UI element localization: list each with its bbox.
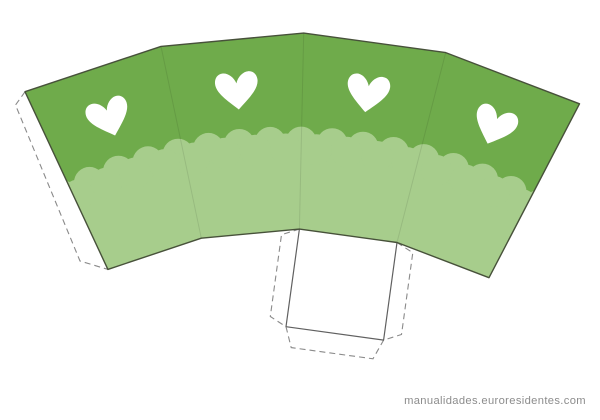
scallop-bump-back <box>179 143 210 174</box>
scallop-bump-back <box>331 137 362 168</box>
box-base-square <box>286 229 397 340</box>
scallop-bump-back <box>149 149 180 180</box>
scallop-bump-back <box>209 138 240 169</box>
scallop-bump-back <box>450 165 481 196</box>
craft-template-svg: manualidades.euroresidentes.com <box>0 0 600 420</box>
watermark-text: manualidades.euroresidentes.com <box>404 395 586 407</box>
scallop-bump-back <box>421 155 452 186</box>
scallop-bump-back <box>362 141 393 172</box>
scallop-bump-back <box>301 134 332 165</box>
scallop-bump-back <box>240 135 271 166</box>
scallop-bump-back <box>120 158 151 189</box>
scallop-bump-back <box>91 168 122 199</box>
scallop-bump-back <box>270 134 301 165</box>
scallop-bump-back <box>479 176 510 207</box>
papercraft-template-page: manualidades.euroresidentes.com <box>0 0 600 420</box>
